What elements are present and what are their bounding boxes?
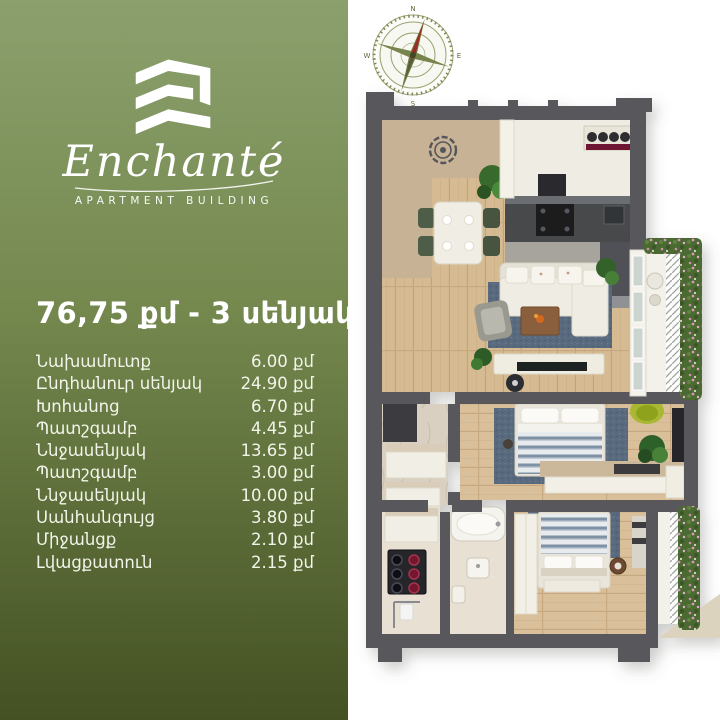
white-partition: [500, 120, 514, 198]
compass-north-label: N: [410, 5, 415, 13]
balcony-window-wall: [630, 250, 646, 396]
compass-west-label: W: [364, 52, 371, 60]
poster: Enchanté APARTMENT BUILDING 76,75 քմ - 3…: [0, 0, 720, 720]
floor-plan: N E S W: [0, 0, 720, 720]
bedroom-1: [494, 398, 692, 498]
compass-east-label: E: [457, 52, 461, 60]
